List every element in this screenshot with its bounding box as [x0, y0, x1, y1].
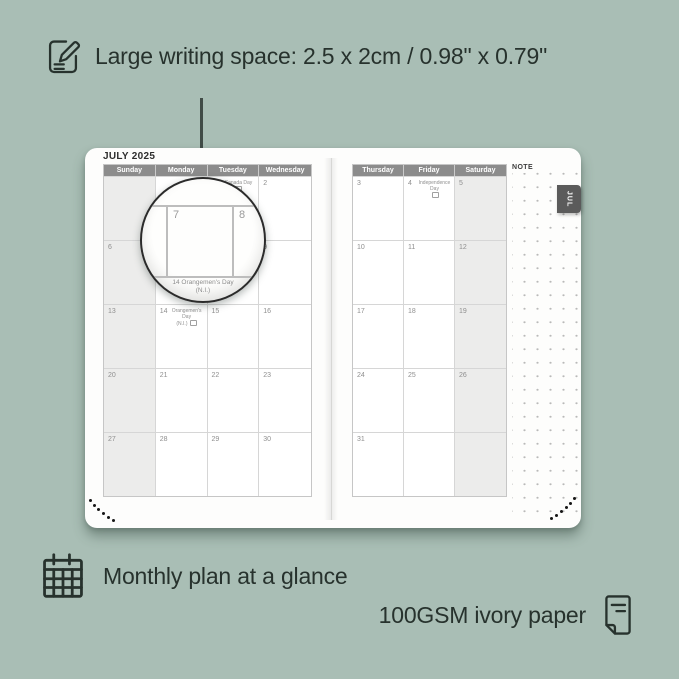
date-number: 16 [263, 308, 271, 315]
caption-writing-space: Large writing space: 2.5 x 2cm / 0.98" x… [44, 33, 547, 79]
date-number: 14 [160, 308, 168, 315]
date-number: 10 [357, 244, 365, 251]
stitch-marks-right [547, 497, 577, 523]
date-number: 4 [408, 180, 412, 187]
date-number: 17 [357, 308, 365, 315]
calendar-grid-right: ThursdayFridaySaturday34Independence Day… [352, 164, 507, 497]
day-header: Tuesday [208, 165, 260, 176]
day-cell: 17 [353, 304, 404, 368]
product-infographic: Large writing space: 2.5 x 2cm / 0.98" x… [0, 0, 679, 679]
day-cell: 2 [259, 176, 311, 240]
date-number: 31 [357, 436, 365, 443]
month-tab-jul: JUL [557, 185, 581, 213]
day-cell: 11 [404, 240, 455, 304]
stitch-marks-left [88, 499, 118, 525]
magnified-grid-line [232, 205, 234, 276]
day-cell: 24 [353, 368, 404, 432]
date-number: 12 [459, 244, 467, 251]
day-cell: 9 [259, 240, 311, 304]
day-cell: 27 [104, 432, 156, 496]
date-number: 19 [459, 308, 467, 315]
date-number: 15 [212, 308, 220, 315]
day-cell: 31 [353, 432, 404, 496]
date-number: 24 [357, 372, 365, 379]
day-cell: 12 [455, 240, 506, 304]
caption-writing-space-text: Large writing space: 2.5 x 2cm / 0.98" x… [95, 43, 547, 70]
day-header: Friday [404, 165, 455, 176]
day-cell: 19 [455, 304, 506, 368]
note-section: NOTE [512, 164, 578, 520]
caption-paper-text: 100GSM ivory paper [379, 602, 586, 629]
caption-monthly-plan: Monthly plan at a glance [40, 552, 348, 600]
day-cell: 14Orangemen's Day(N.I.) [156, 304, 208, 368]
date-number: 23 [263, 372, 271, 379]
day-cell: 30 [259, 432, 311, 496]
day-cell: 26 [455, 368, 506, 432]
magnified-day-8: 8 [239, 209, 245, 221]
day-header: Wednesday [259, 165, 311, 176]
day-cell: 13 [104, 304, 156, 368]
month-title: JULY 2025 [103, 151, 155, 162]
day-header: Sunday [104, 165, 156, 176]
day-cell: 16 [259, 304, 311, 368]
magnified-grid-line [142, 205, 264, 207]
holiday-label: Orangemen's Day(N.I.) [169, 308, 205, 327]
day-cell [404, 432, 455, 496]
date-number: 20 [108, 372, 116, 379]
day-cell: 3 [353, 176, 404, 240]
note-label: NOTE [512, 164, 537, 173]
date-number: 27 [108, 436, 116, 443]
magnified-day-7: 7 [173, 209, 179, 221]
caption-paper: 100GSM ivory paper [379, 589, 635, 641]
date-number: 13 [108, 308, 116, 315]
magnifier-circle: 7 8 14 Orangemen's Day (N.I.) [140, 177, 266, 303]
date-number: 5 [459, 180, 463, 187]
day-cell: 23 [259, 368, 311, 432]
caption-monthly-plan-text: Monthly plan at a glance [103, 563, 348, 590]
date-number: 30 [263, 436, 271, 443]
day-cell: 29 [208, 432, 260, 496]
day-cell: 5 [455, 176, 506, 240]
magnified-holiday-text2: (N.I.) [142, 287, 264, 294]
date-number: 18 [408, 308, 416, 315]
date-number: 26 [459, 372, 467, 379]
holiday-label: Independence Day [417, 180, 452, 199]
magnified-grid-line [166, 205, 168, 276]
day-cell: 20 [104, 368, 156, 432]
magnified-holiday-text: 14 Orangemen's Day [142, 279, 264, 286]
date-number: 25 [408, 372, 416, 379]
day-cell: 10 [353, 240, 404, 304]
day-header: Monday [156, 165, 208, 176]
day-cell: 25 [404, 368, 455, 432]
holiday-flag-icon [190, 320, 197, 326]
day-header: Thursday [353, 165, 404, 176]
day-cell: 22 [208, 368, 260, 432]
date-number: 21 [160, 372, 168, 379]
month-tab-label: JUL [566, 191, 573, 207]
holiday-flag-icon [432, 192, 439, 198]
date-number: 11 [408, 244, 415, 251]
day-cell [455, 432, 506, 496]
day-cell: 18 [404, 304, 455, 368]
pencil-note-icon [44, 33, 82, 79]
day-cell: 21 [156, 368, 208, 432]
magnified-grid-line [142, 276, 264, 278]
calendar-grid-icon [40, 552, 86, 600]
date-number: 2 [263, 180, 267, 187]
date-number: 22 [212, 372, 220, 379]
day-header: Saturday [455, 165, 506, 176]
date-number: 6 [108, 244, 112, 251]
page-spine [324, 158, 338, 520]
day-cell: 4Independence Day [404, 176, 455, 240]
day-cell: 28 [156, 432, 208, 496]
day-cell: 15 [208, 304, 260, 368]
date-number: 29 [212, 436, 220, 443]
paper-sheet-icon [601, 589, 635, 641]
date-number: 3 [357, 180, 361, 187]
date-number: 28 [160, 436, 168, 443]
